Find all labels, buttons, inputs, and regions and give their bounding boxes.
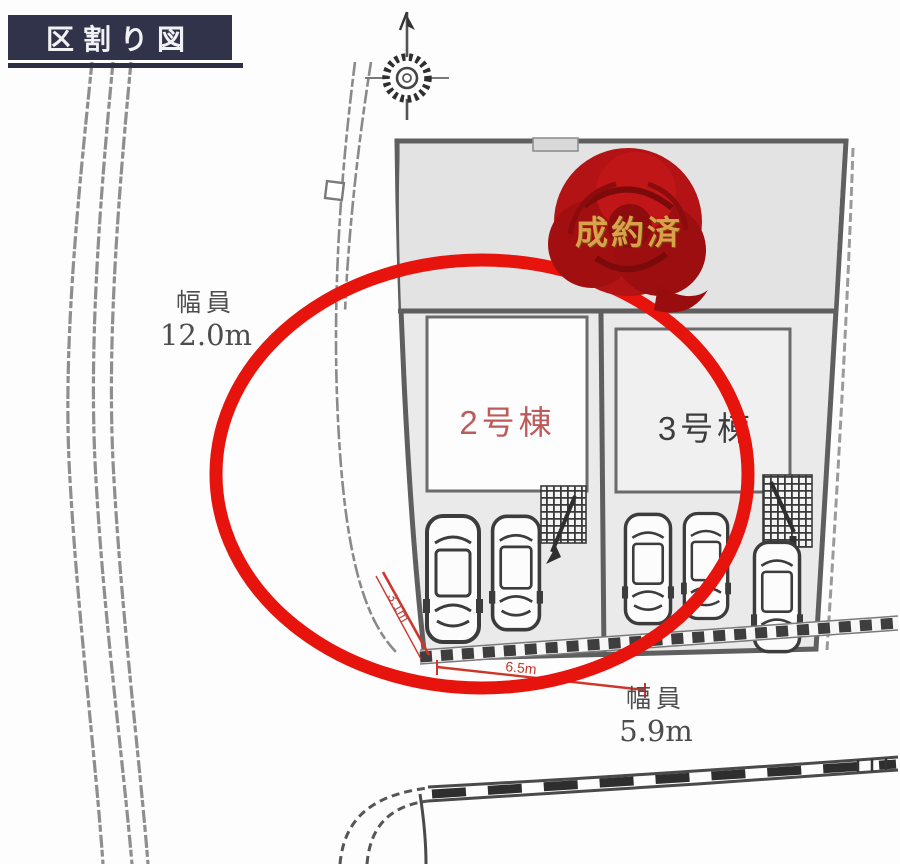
lot3-label: 3号棟	[636, 402, 776, 450]
svg-text:6.5m: 6.5m	[505, 658, 538, 677]
sold-stamp-label: 成約済	[552, 206, 706, 254]
car-icon	[423, 516, 483, 642]
road-marker-square	[325, 181, 344, 200]
boundary-notch	[533, 138, 578, 151]
car-icon	[681, 514, 731, 619]
road-width-left-label: 幅員 12.0m	[146, 288, 266, 353]
lot-divider-vertical	[601, 313, 604, 657]
car-icon	[622, 514, 674, 623]
road-width-front-value: 5.9m	[596, 714, 716, 749]
plot-division-map: 3.1m 6.5m 区割り図 幅員 12.0m 幅員 5.9m 2号棟 3号棟	[0, 0, 900, 864]
compass-north-icon	[365, 12, 449, 120]
road-width-left-value: 12.0m	[146, 318, 266, 353]
roadside-edge-line	[336, 62, 396, 652]
page-title: 区割り図	[8, 15, 232, 60]
left-road-lines	[68, 62, 148, 864]
lot2-label: 2号棟	[440, 396, 575, 444]
road-width-front-label: 幅員 5.9m	[596, 684, 716, 749]
title-underline	[8, 63, 243, 68]
car-icon	[489, 516, 543, 629]
road-width-left-kanji: 幅員	[146, 288, 266, 318]
bottom-road	[340, 757, 898, 864]
road-width-front-kanji: 幅員	[596, 684, 716, 714]
